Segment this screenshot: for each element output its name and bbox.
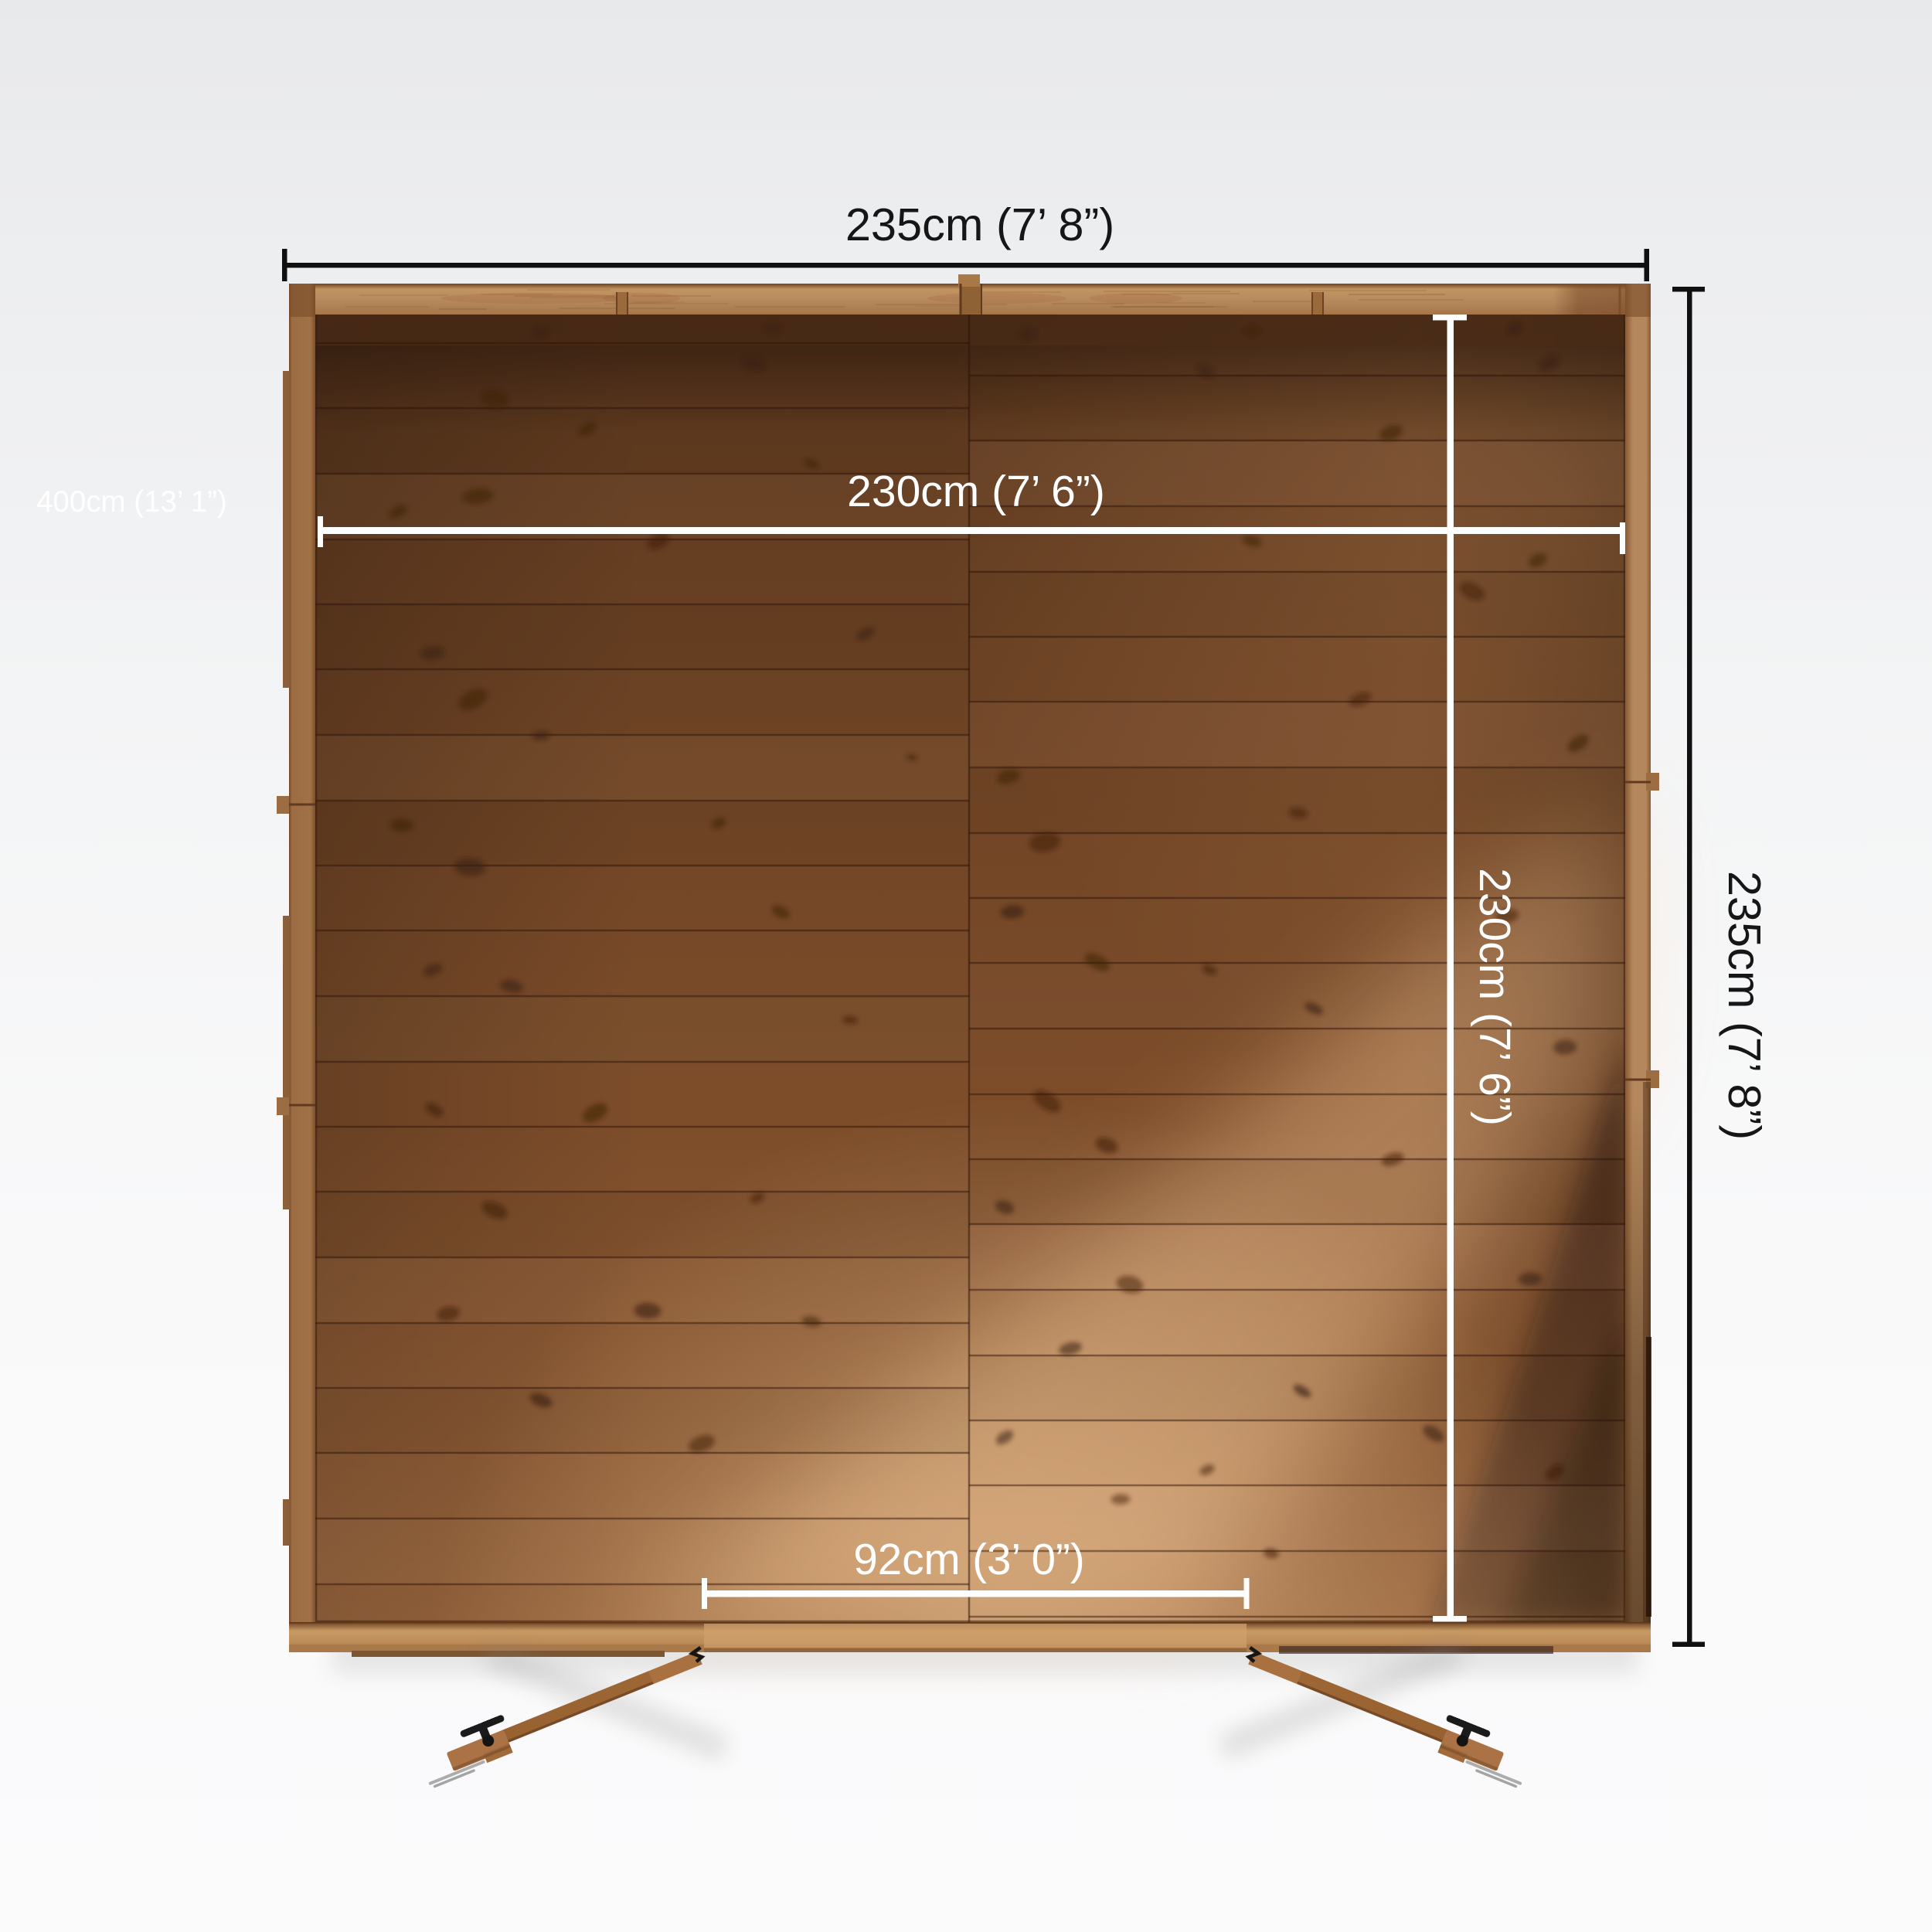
svg-text:400cm (13’ 1”): 400cm (13’ 1”) bbox=[36, 485, 227, 519]
svg-text:230cm (7’ 6”): 230cm (7’ 6”) bbox=[1470, 868, 1519, 1126]
svg-text:235cm (7’ 8”): 235cm (7’ 8”) bbox=[845, 199, 1114, 250]
svg-text:92cm (3’ 0”): 92cm (3’ 0”) bbox=[853, 1535, 1084, 1583]
svg-text:230cm (7’ 6”): 230cm (7’ 6”) bbox=[847, 467, 1105, 516]
svg-text:235cm (7’ 8”): 235cm (7’ 8”) bbox=[1719, 871, 1770, 1140]
